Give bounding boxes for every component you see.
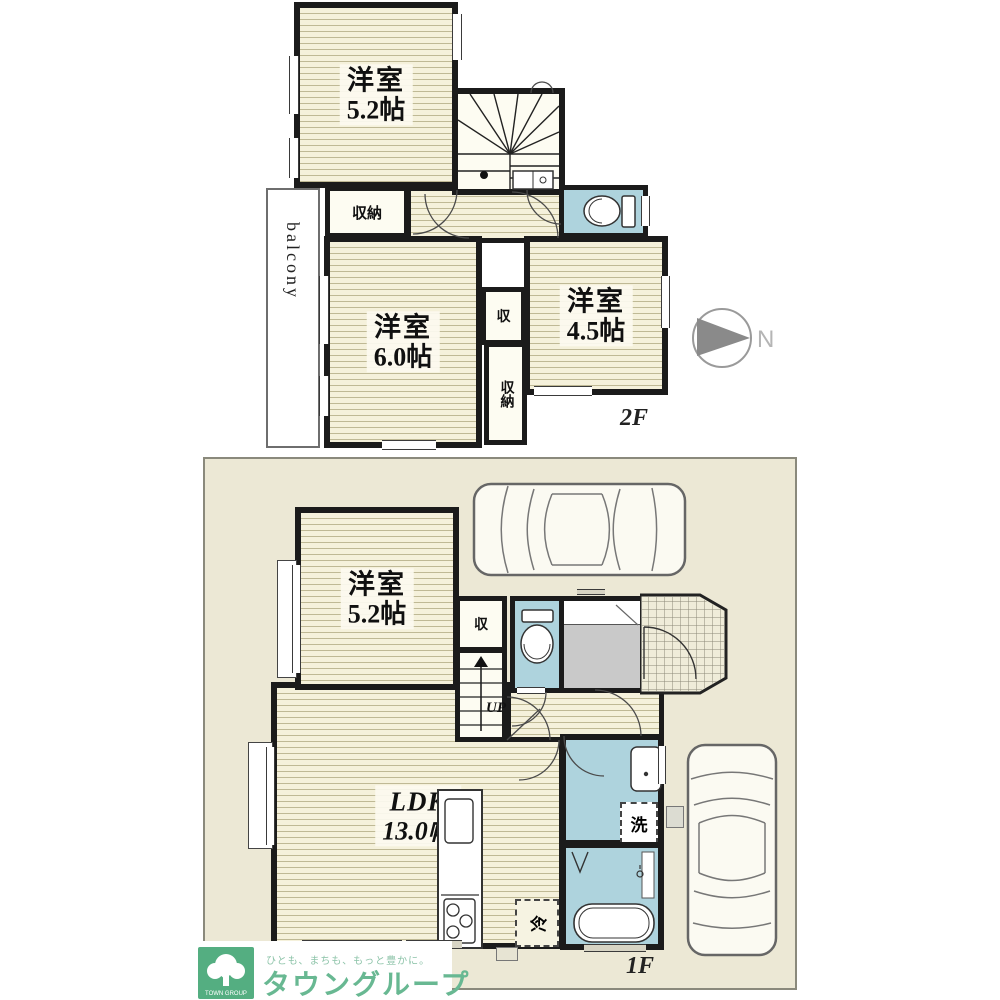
window	[319, 276, 329, 344]
town-group-logo: TOWN GROUP	[198, 947, 254, 999]
entry-genkan	[559, 596, 646, 693]
toilet-icon-2f	[564, 190, 643, 233]
car-top-view-horizontal	[472, 480, 687, 579]
window	[534, 386, 592, 396]
water-heater	[666, 806, 684, 828]
room-western-6_0-2f: 洋室 6.0帖	[324, 236, 482, 448]
window	[577, 589, 605, 595]
window	[382, 440, 436, 450]
window	[266, 747, 275, 845]
washing-machine: 洗	[620, 802, 658, 844]
closet-1f: 収	[455, 596, 507, 652]
window	[319, 376, 329, 416]
logo-caption-text: TOWN GROUP	[205, 991, 247, 997]
toilet-room-1f	[510, 596, 565, 693]
window	[289, 56, 299, 114]
closet-storage-2f-vertical: 収納	[484, 342, 527, 445]
floor-label-1f: 1F	[626, 953, 654, 980]
window	[452, 14, 462, 60]
window	[658, 746, 666, 784]
kitchen-counter	[437, 789, 483, 949]
room-western-4_5-2f: 洋室 4.5帖	[524, 236, 668, 395]
room-western-5_2-1f: 洋室 5.2帖	[295, 507, 459, 690]
bathroom-1f	[560, 842, 664, 950]
window	[289, 138, 299, 178]
closet-small-2f: 収	[481, 287, 526, 345]
stairs-up-label: UP	[486, 700, 506, 717]
window	[517, 687, 545, 694]
branding-area: TOWN GROUP ひとも、まちも、もっと豊かに。 タウングループ	[190, 941, 452, 1000]
window	[641, 196, 650, 226]
closet-storage-2f-top: 収納	[325, 186, 409, 238]
car-top-view-vertical	[685, 743, 779, 957]
window	[292, 565, 301, 673]
staircase-1f	[455, 648, 507, 742]
toilet-icon-1f	[515, 601, 560, 688]
washroom-1f: 洗	[560, 734, 664, 846]
room-western-5_2-2f: 洋室 5.2帖	[294, 2, 458, 188]
compass-north-icon: N	[691, 306, 779, 370]
floor-plan-canvas: balcony 洋室 5.2帖	[0, 0, 1000, 1000]
window	[661, 276, 670, 328]
entrance-porch	[640, 593, 730, 695]
washbasin-2f	[512, 170, 554, 190]
floor-label-2f: 2F	[620, 405, 648, 432]
room-label: 洋室 6.0帖	[367, 311, 440, 372]
balcony-label: balcony	[282, 222, 303, 300]
balcony: balcony	[266, 188, 320, 448]
svg-text:N: N	[757, 326, 774, 353]
window	[584, 944, 646, 952]
room-label: 洋室 4.5帖	[560, 285, 633, 346]
exterior-step	[496, 947, 518, 961]
room-label: 洋室 5.2帖	[340, 64, 413, 125]
brand-company-name: タウングループ	[262, 963, 470, 1000]
bathtub	[566, 848, 658, 944]
kitchen-fixtures	[439, 791, 481, 947]
toilet-room-2f	[559, 185, 648, 238]
stairs-1f-steps	[460, 653, 502, 737]
refrigerator: 冷	[515, 899, 559, 947]
room-label: 洋室 5.2帖	[341, 568, 414, 629]
genkan-counter-line	[564, 601, 641, 631]
